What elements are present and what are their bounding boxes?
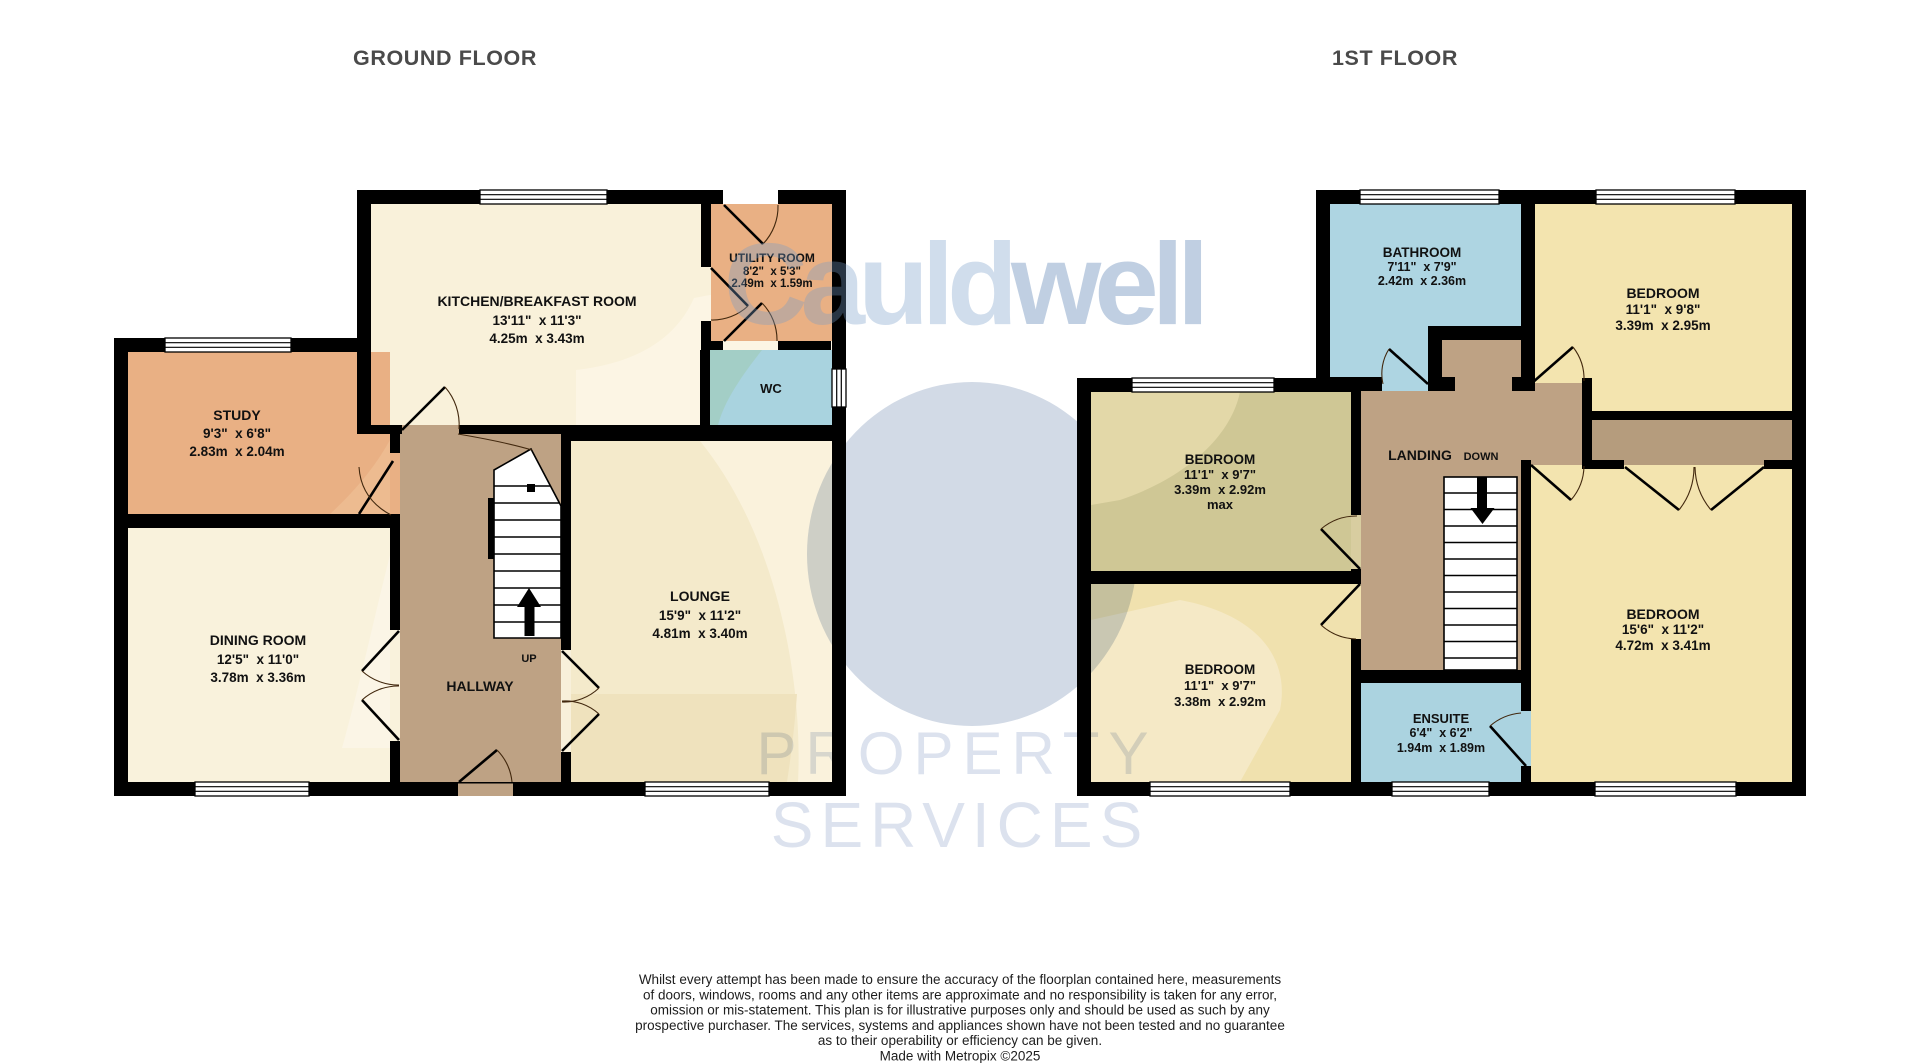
svg-text:PROPERTY: PROPERTY xyxy=(757,720,1158,787)
svg-text:GROUND FLOOR: GROUND FLOOR xyxy=(353,46,537,70)
svg-text:as to their operability or eff: as to their operability or efficiency ca… xyxy=(818,1033,1102,1048)
svg-text:6'4" x 6'2": 6'4" x 6'2" xyxy=(1410,726,1473,740)
svg-text:HALLWAY: HALLWAY xyxy=(446,678,514,694)
svg-text:omission or mis-statement. Thi: omission or mis-statement. This plan is … xyxy=(650,1003,1270,1018)
svg-text:9'3" x 6'8": 9'3" x 6'8" xyxy=(203,426,271,441)
svg-text:Made with Metropix ©2025: Made with Metropix ©2025 xyxy=(880,1049,1041,1063)
svg-text:2.83m x 2.04m: 2.83m x 2.04m xyxy=(189,444,284,459)
svg-text:1ST FLOOR: 1ST FLOOR xyxy=(1332,46,1458,70)
svg-text:BEDROOM: BEDROOM xyxy=(1626,285,1699,301)
svg-text:3.39m x 2.95m: 3.39m x 2.95m xyxy=(1615,318,1710,333)
svg-text:BEDROOM: BEDROOM xyxy=(1185,662,1256,677)
svg-text:KITCHEN/BREAKFAST ROOM: KITCHEN/BREAKFAST ROOM xyxy=(437,293,636,309)
svg-text:2.42m x 2.36m: 2.42m x 2.36m xyxy=(1378,274,1466,288)
svg-text:LOUNGE: LOUNGE xyxy=(670,588,730,604)
svg-text:7'11" x 7'9": 7'11" x 7'9" xyxy=(1387,260,1456,274)
svg-text:BATHROOM: BATHROOM xyxy=(1383,245,1462,260)
svg-text:4.81m x 3.40m: 4.81m x 3.40m xyxy=(652,626,747,641)
svg-text:WC: WC xyxy=(760,381,782,396)
svg-text:LANDING: LANDING xyxy=(1388,447,1452,463)
svg-text:4.25m x 3.43m: 4.25m x 3.43m xyxy=(489,331,584,346)
svg-text:11'1" x 9'7": 11'1" x 9'7" xyxy=(1184,678,1256,693)
svg-text:11'1" x 9'8": 11'1" x 9'8" xyxy=(1626,302,1701,317)
svg-text:DINING ROOM: DINING ROOM xyxy=(210,632,306,648)
svg-text:15'9" x 11'2": 15'9" x 11'2" xyxy=(659,608,741,623)
svg-text:15'6" x 11'2": 15'6" x 11'2" xyxy=(1622,622,1704,637)
svg-text:13'11" x 11'3": 13'11" x 11'3" xyxy=(492,313,581,328)
svg-text:SERVICES: SERVICES xyxy=(771,789,1150,861)
svg-text:3.39m x 2.92m: 3.39m x 2.92m xyxy=(1174,482,1266,497)
svg-text:ENSUITE: ENSUITE xyxy=(1413,711,1470,726)
svg-text:Cauldwell: Cauldwell xyxy=(724,219,1202,349)
svg-text:Whilst every attempt has been: Whilst every attempt has been made to en… xyxy=(639,972,1282,987)
svg-text:1.94m x 1.89m: 1.94m x 1.89m xyxy=(1397,741,1485,755)
svg-text:12'5" x 11'0": 12'5" x 11'0" xyxy=(217,652,299,667)
svg-text:UP: UP xyxy=(521,653,536,665)
svg-text:11'1" x 9'7": 11'1" x 9'7" xyxy=(1184,467,1256,482)
svg-text:4.72m x 3.41m: 4.72m x 3.41m xyxy=(1615,638,1710,653)
svg-text:max: max xyxy=(1207,497,1234,512)
svg-text:prospective purchaser. The ser: prospective purchaser. The services, sys… xyxy=(635,1018,1285,1033)
svg-text:3.78m x 3.36m: 3.78m x 3.36m xyxy=(210,670,305,685)
svg-text:BEDROOM: BEDROOM xyxy=(1185,452,1256,467)
svg-text:BEDROOM: BEDROOM xyxy=(1626,606,1699,622)
svg-text:of doors, windows, rooms and a: of doors, windows, rooms and any other i… xyxy=(643,987,1277,1002)
svg-text:3.38m x 2.92m: 3.38m x 2.92m xyxy=(1174,694,1266,709)
svg-text:DOWN: DOWN xyxy=(1464,451,1499,463)
svg-text:STUDY: STUDY xyxy=(213,407,261,423)
